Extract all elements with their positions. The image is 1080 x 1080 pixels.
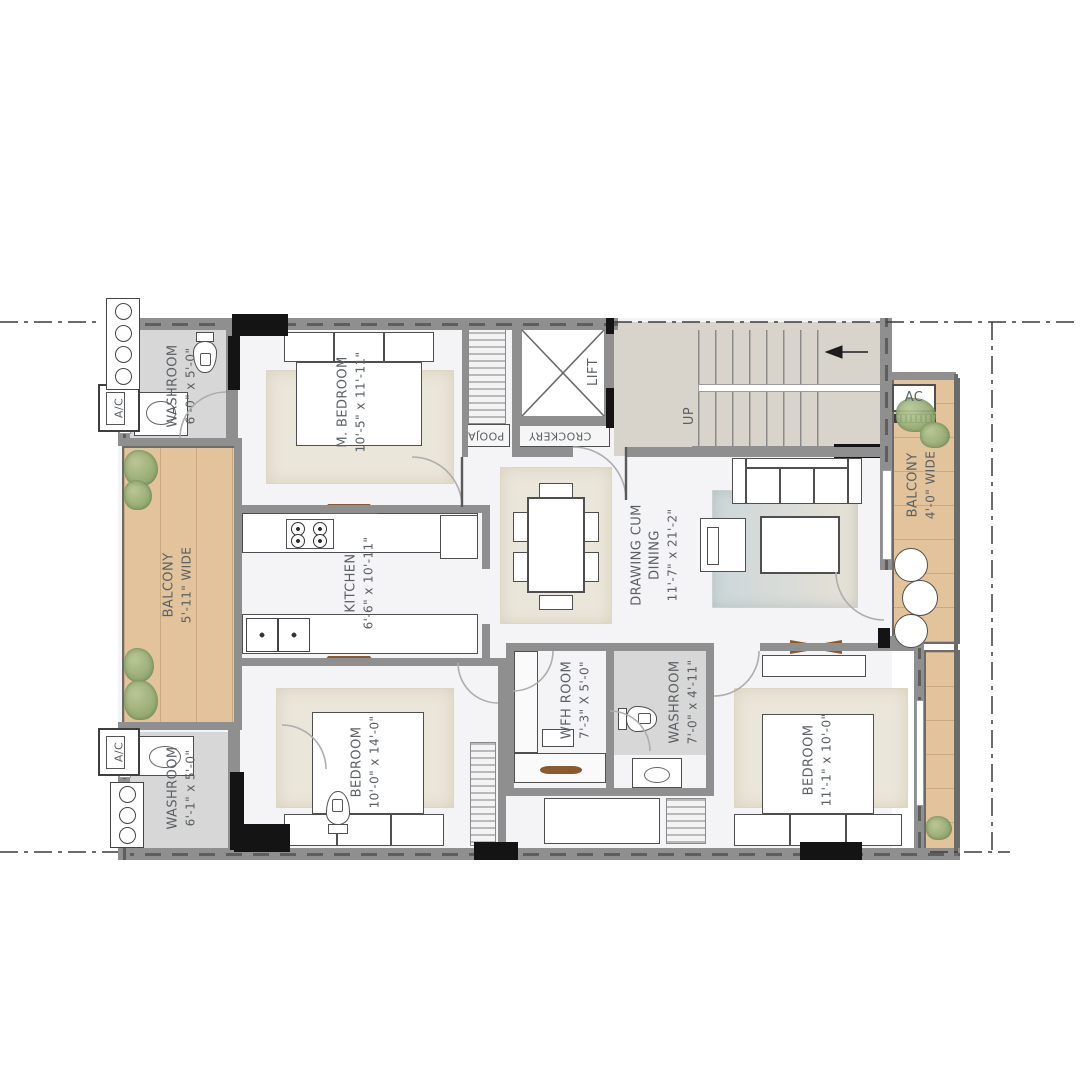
column-washroom-tl <box>228 336 240 390</box>
floor-plan-canvas: WASHROOM6'-0" x 5'-0" M. BEDROOM10'-5" x… <box>0 0 1080 1080</box>
dining-chair <box>539 483 573 498</box>
window-drawing-right <box>882 470 892 560</box>
balcony-chair-icon <box>894 614 928 648</box>
dining-table-icon <box>527 497 585 593</box>
sofa-icon <box>732 458 862 504</box>
bedroom-bl-headboard <box>284 814 444 846</box>
wall-lobby-bottom-right <box>626 447 888 457</box>
dining-chair <box>539 595 573 610</box>
column-lift-right-top <box>606 318 614 334</box>
wall-kitchen-bottom <box>240 658 498 666</box>
wall-bedroom-bl-right <box>498 658 506 848</box>
m-bedroom-wardrobe <box>468 324 506 424</box>
balcony-table-icon <box>902 580 938 616</box>
wall-balcony-right-top <box>892 372 956 380</box>
column-bottom-3 <box>800 842 862 860</box>
balcony-chair-icon <box>894 548 928 582</box>
wall-lobby-bottom-left <box>512 447 573 457</box>
column-bottom-2 <box>474 842 518 860</box>
wall-wfh-washroom-divider <box>606 643 614 793</box>
plant-icon <box>926 816 952 840</box>
column-balcony-corner <box>878 628 890 648</box>
stove-icon <box>286 519 334 549</box>
plant-icon <box>124 480 152 510</box>
sink-icon-center <box>632 758 682 788</box>
wall-lift-bottom <box>512 418 614 426</box>
armchair-icon <box>700 518 746 572</box>
duct-bottom-left <box>110 782 144 848</box>
wall-top <box>118 318 618 330</box>
wall-balcony-left-inner <box>234 446 242 724</box>
fridge-icon <box>440 515 478 559</box>
storage-wardrobe <box>544 798 660 844</box>
plant-icon <box>920 422 950 448</box>
wfh-desk-vertical <box>514 651 538 753</box>
bedroom-bl-wardrobe <box>470 742 496 846</box>
wall-kitchen-top <box>240 505 490 513</box>
wall-washroom-tl-bottom <box>118 438 242 446</box>
toilet-icon-center <box>618 702 660 736</box>
wall-wfh-bottom <box>506 788 714 796</box>
column-top-left <box>232 314 288 336</box>
plant-icon <box>124 648 154 682</box>
coffee-table-icon <box>760 516 840 574</box>
balcony-right-rail <box>954 374 958 856</box>
column-lift-right-bottom <box>606 388 614 428</box>
column-bottom-1 <box>234 824 290 852</box>
dining-chair <box>584 552 599 582</box>
stair-mid-rail <box>698 384 882 392</box>
wall-wfh-left <box>506 643 514 790</box>
dining-chair <box>513 552 528 582</box>
kitchen-sink-icon <box>246 618 310 652</box>
window-bedroom-br <box>916 700 924 806</box>
wfh-chair-icon <box>540 766 582 774</box>
dining-chair <box>513 512 528 542</box>
wall-washroom-center-right <box>706 643 714 793</box>
wall-lift-left <box>512 318 520 457</box>
plant-icon <box>124 680 158 720</box>
stair-flight-lower <box>698 392 826 450</box>
storage-wardrobe-hatched <box>666 798 706 844</box>
duct-top-left <box>106 298 140 390</box>
stair-flight-upper <box>698 330 826 384</box>
dining-chair <box>584 512 599 542</box>
bedroom-br-desk <box>762 655 866 677</box>
wall-kitchen-right-upper <box>482 513 490 569</box>
